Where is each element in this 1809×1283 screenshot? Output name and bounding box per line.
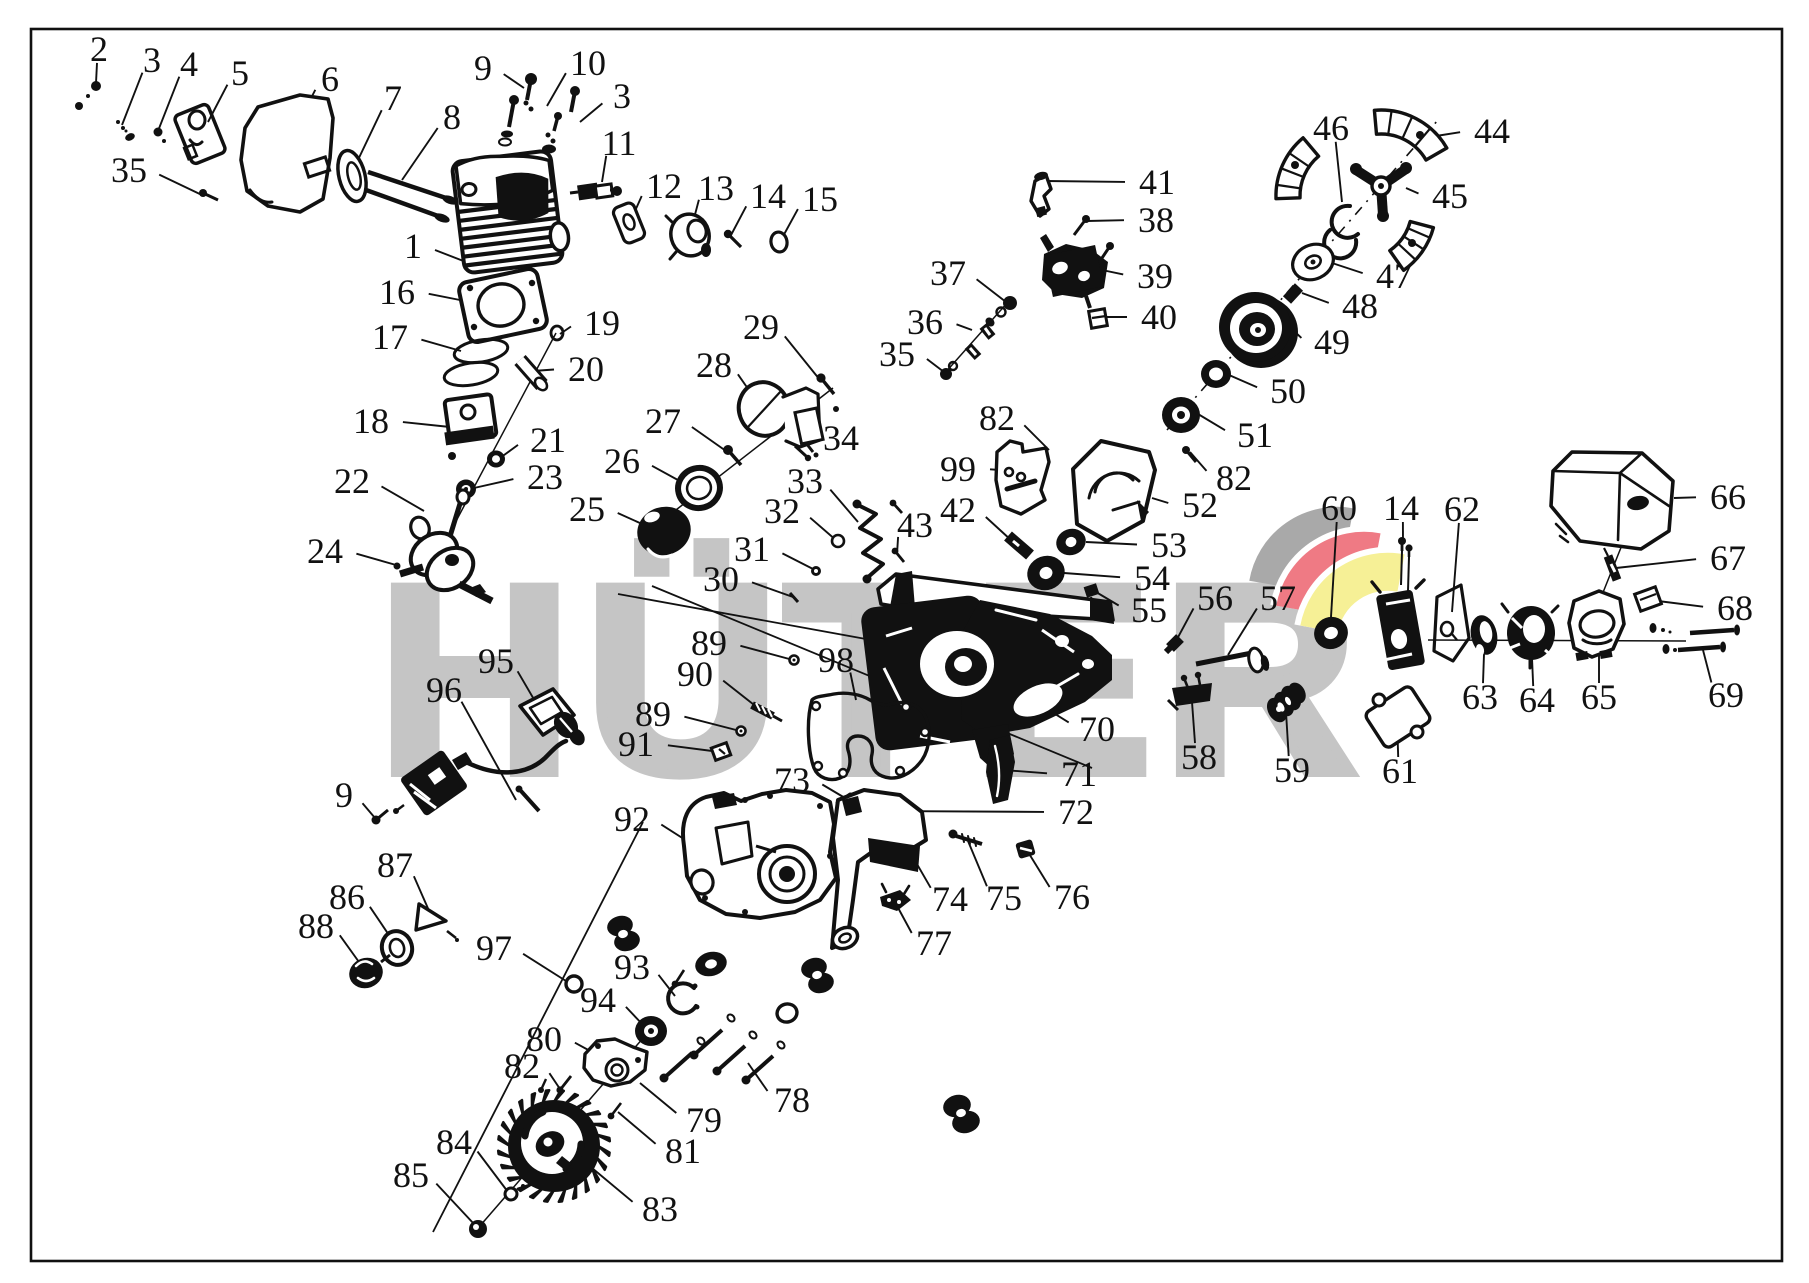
svg-text:61: 61: [1382, 751, 1418, 791]
svg-text:29: 29: [743, 307, 779, 347]
svg-text:93: 93: [614, 947, 650, 987]
svg-text:3: 3: [143, 40, 161, 80]
svg-text:9: 9: [474, 48, 492, 88]
svg-text:55: 55: [1131, 590, 1167, 630]
svg-text:14: 14: [1383, 488, 1419, 528]
svg-text:82: 82: [979, 398, 1015, 438]
svg-text:30: 30: [703, 559, 739, 599]
svg-text:95: 95: [478, 641, 514, 681]
svg-text:57: 57: [1260, 578, 1296, 618]
svg-text:3: 3: [613, 76, 631, 116]
svg-text:65: 65: [1581, 677, 1617, 717]
svg-text:87: 87: [377, 845, 413, 885]
svg-text:82: 82: [504, 1046, 540, 1086]
svg-text:21: 21: [530, 420, 566, 460]
svg-text:45: 45: [1432, 176, 1468, 216]
svg-text:98: 98: [818, 640, 854, 680]
svg-text:68: 68: [1717, 588, 1753, 628]
svg-text:92: 92: [614, 799, 650, 839]
svg-text:15: 15: [802, 179, 838, 219]
svg-text:24: 24: [307, 531, 343, 571]
svg-text:86: 86: [329, 877, 365, 917]
svg-text:25: 25: [569, 489, 605, 529]
svg-text:12: 12: [646, 166, 682, 206]
svg-text:22: 22: [334, 461, 370, 501]
svg-text:13: 13: [698, 168, 734, 208]
svg-text:56: 56: [1197, 578, 1233, 618]
svg-text:8: 8: [443, 97, 461, 137]
svg-text:77: 77: [916, 923, 952, 963]
svg-text:41: 41: [1139, 162, 1175, 202]
svg-text:4: 4: [180, 44, 198, 84]
svg-text:52: 52: [1182, 485, 1218, 525]
svg-text:88: 88: [298, 906, 334, 946]
svg-text:75: 75: [986, 878, 1022, 918]
svg-text:26: 26: [604, 441, 640, 481]
svg-text:94: 94: [580, 980, 616, 1020]
svg-text:7: 7: [384, 78, 402, 118]
svg-text:6: 6: [321, 59, 339, 99]
svg-text:40: 40: [1141, 297, 1177, 337]
svg-text:90: 90: [677, 654, 713, 694]
svg-text:39: 39: [1137, 256, 1173, 296]
svg-text:81: 81: [665, 1131, 701, 1171]
svg-text:5: 5: [231, 53, 249, 93]
svg-text:27: 27: [645, 401, 681, 441]
svg-text:84: 84: [436, 1122, 472, 1162]
svg-text:63: 63: [1462, 677, 1498, 717]
svg-text:32: 32: [764, 491, 800, 531]
svg-text:18: 18: [353, 401, 389, 441]
svg-text:34: 34: [823, 418, 859, 458]
svg-text:85: 85: [393, 1155, 429, 1195]
svg-text:72: 72: [1058, 792, 1094, 832]
svg-text:1: 1: [404, 226, 422, 266]
svg-text:14: 14: [750, 176, 786, 216]
svg-text:66: 66: [1710, 477, 1746, 517]
svg-text:35: 35: [879, 334, 915, 374]
svg-text:17: 17: [372, 317, 408, 357]
svg-text:48: 48: [1342, 286, 1378, 326]
svg-text:74: 74: [932, 879, 968, 919]
svg-text:10: 10: [570, 43, 606, 83]
svg-text:11: 11: [602, 123, 637, 163]
svg-text:50: 50: [1270, 371, 1306, 411]
svg-text:37: 37: [930, 253, 966, 293]
svg-text:69: 69: [1708, 675, 1744, 715]
svg-text:97: 97: [476, 928, 512, 968]
svg-text:23: 23: [527, 457, 563, 497]
svg-text:82: 82: [1216, 458, 1252, 498]
svg-text:96: 96: [426, 670, 462, 710]
svg-text:49: 49: [1314, 322, 1350, 362]
svg-text:31: 31: [734, 529, 770, 569]
svg-text:78: 78: [774, 1080, 810, 1120]
svg-text:20: 20: [568, 349, 604, 389]
svg-text:67: 67: [1710, 538, 1746, 578]
svg-text:51: 51: [1237, 415, 1273, 455]
svg-text:38: 38: [1138, 200, 1174, 240]
svg-text:28: 28: [696, 345, 732, 385]
svg-text:42: 42: [940, 490, 976, 530]
svg-text:99: 99: [940, 449, 976, 489]
svg-text:59: 59: [1274, 750, 1310, 790]
svg-text:70: 70: [1079, 709, 1115, 749]
svg-text:2: 2: [90, 29, 108, 69]
svg-text:64: 64: [1519, 680, 1555, 720]
svg-text:19: 19: [584, 303, 620, 343]
svg-text:83: 83: [642, 1189, 678, 1229]
svg-text:44: 44: [1474, 111, 1510, 151]
svg-text:9: 9: [335, 775, 353, 815]
svg-text:91: 91: [618, 724, 654, 764]
svg-text:58: 58: [1181, 737, 1217, 777]
svg-text:76: 76: [1054, 877, 1090, 917]
svg-text:62: 62: [1444, 489, 1480, 529]
svg-text:35: 35: [111, 150, 147, 190]
svg-text:43: 43: [897, 505, 933, 545]
svg-text:46: 46: [1313, 108, 1349, 148]
svg-text:16: 16: [379, 272, 415, 312]
svg-text:71: 71: [1061, 754, 1097, 794]
svg-text:60: 60: [1321, 488, 1357, 528]
